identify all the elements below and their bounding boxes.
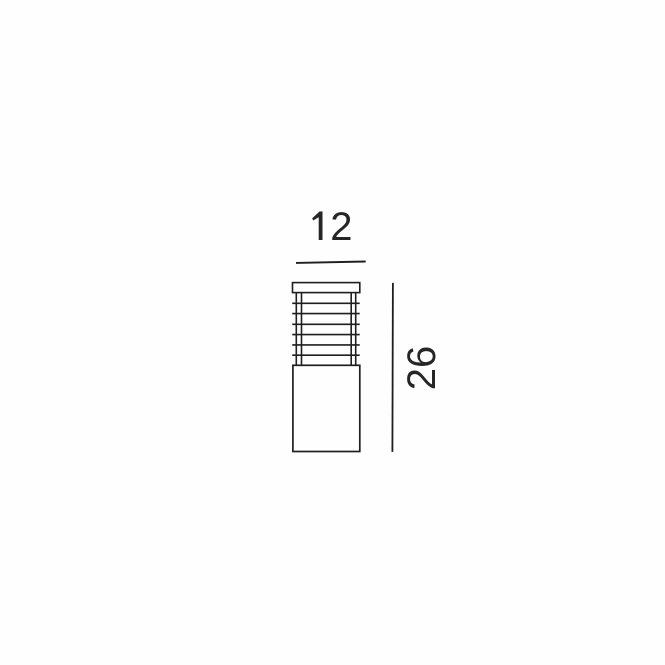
svg-text:2: 2 [330,205,352,249]
svg-text:26: 26 [400,346,444,391]
